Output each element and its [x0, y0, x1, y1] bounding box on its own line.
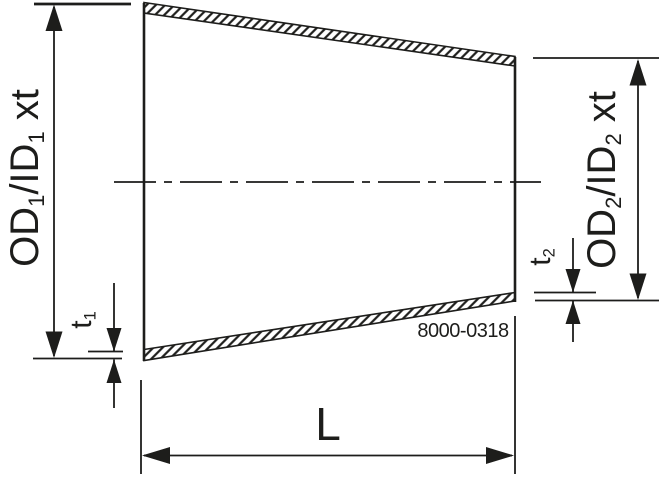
od1-label-text: /ID [3, 144, 47, 195]
od2-label-text: xt [580, 91, 624, 133]
arrowhead-up-icon [46, 5, 63, 32]
od1-label-text: OD [3, 207, 47, 267]
od1-label: OD1/ID1 xt [5, 89, 45, 267]
arrowhead-down-icon [630, 274, 647, 301]
od2-label-text: /ID [580, 146, 624, 197]
t2-label-subscript: 2 [541, 248, 559, 257]
t2-label: t2 [526, 248, 556, 266]
t1-label-text: t [65, 320, 98, 328]
drawing-number: 8000-0318 [417, 321, 508, 341]
arrowhead-down-icon [107, 328, 122, 352]
arrowhead-up-icon [107, 360, 122, 384]
t1-label-subscript: 1 [82, 311, 100, 320]
od1-label-text: xt [3, 89, 47, 131]
arrowhead-left-icon [142, 447, 170, 464]
t2-label-text: t [524, 257, 557, 265]
arrowhead-down-icon [566, 269, 581, 293]
arrowhead-right-icon [486, 447, 514, 464]
arrowhead-up-icon [566, 301, 581, 325]
reducer-technical-drawing: OD1/ID1 xt OD2/ID2 xt t1 t2 L 8000-0318 [0, 0, 659, 477]
od2-label-subscript: 2 [601, 197, 626, 209]
od2-label: OD2/ID2 xt [582, 91, 622, 269]
t1-label: t1 [67, 311, 97, 329]
od2-label-subscript: 2 [601, 133, 626, 145]
arrowhead-up-icon [630, 59, 647, 86]
arrowhead-down-icon [46, 332, 63, 359]
od2-label-text: OD [580, 209, 624, 269]
od1-label-subscript: 1 [24, 131, 49, 143]
length-label: L [315, 401, 341, 447]
top-wall-hatch [144, 3, 515, 67]
t1-dimension [88, 283, 123, 408]
od1-label-subscript: 1 [24, 195, 49, 207]
